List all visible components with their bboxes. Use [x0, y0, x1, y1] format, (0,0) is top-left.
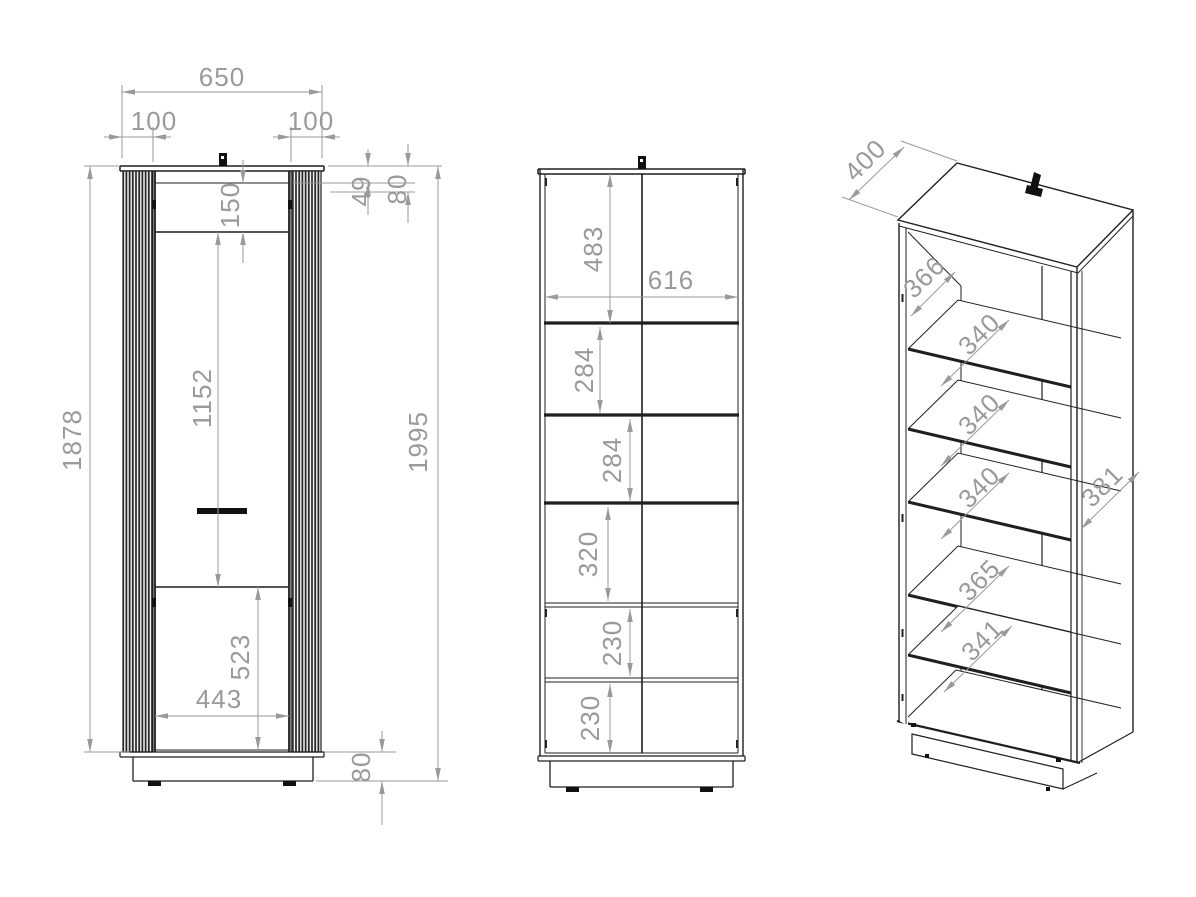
dim-compartment-5-group: 230: [597, 609, 630, 676]
bottom-panel: [120, 752, 324, 757]
foot: [1056, 758, 1061, 762]
dim-compartment-2-group: 284: [569, 327, 600, 413]
dim-top-depth: 400: [838, 133, 892, 187]
drawing-canvas: 650 100 100 49: [0, 0, 1196, 897]
dim-door-width: 443: [196, 684, 242, 714]
dim-compartment-3-group: 284: [597, 419, 630, 501]
top-panel: [120, 166, 324, 171]
perspective-shelves: [906, 300, 1121, 757]
dim-right-panel: 100: [288, 106, 334, 136]
fluted-panel-right: [291, 171, 321, 752]
bottom-panel: [538, 756, 745, 761]
top-panel: [538, 169, 745, 174]
section-view: 483 616 284 284 320 230: [538, 156, 745, 792]
dim-door-width-group: 443: [155, 684, 289, 716]
dim-left-panel: 100: [131, 106, 177, 136]
dim-door-opening: 1152: [187, 368, 217, 428]
dim-right-panel-group: 100: [273, 106, 340, 162]
foot: [925, 754, 929, 758]
foot: [566, 787, 579, 792]
dim-overall-height-group: 1995: [316, 166, 448, 781]
section-view-cabinet: [538, 156, 745, 792]
wall-connector: [219, 153, 227, 166]
foot: [1046, 787, 1050, 791]
foot: [700, 787, 713, 792]
dim-bottom-section-group: 523: [225, 587, 258, 750]
dim-compartment-4-group: 320: [573, 507, 608, 601]
dim-compartment-1-group: 483: [578, 174, 610, 323]
perspective-view: 400 366 340 340 340 365: [838, 133, 1139, 791]
plinth: [133, 757, 313, 781]
shelf: [908, 300, 1121, 387]
dim-bottom-section: 523: [225, 634, 255, 680]
dim-door-opening-group: 1152: [187, 232, 218, 587]
dim-overall-width: 650: [199, 62, 245, 92]
dim-door-gap: 150: [215, 182, 245, 228]
door-edges: [155, 171, 289, 752]
dim-compartment-4: 320: [573, 531, 603, 577]
dim-compartment-2: 284: [569, 347, 599, 393]
dim-top-section: 80: [382, 174, 412, 205]
foot: [148, 781, 161, 786]
foot: [911, 723, 916, 727]
dim-top-inset: 49: [346, 176, 376, 207]
dim-inner-width: 616: [648, 265, 694, 295]
dim-compartment-6: 230: [575, 695, 605, 741]
technical-drawing-page: 650 100 100 49: [0, 0, 1196, 897]
dim-compartment-6-group: 230: [575, 684, 610, 753]
dim-left-panel-group: 100: [104, 106, 177, 162]
top-panel: [898, 163, 1133, 267]
front-view-dimensions: 650 100 100 49: [57, 62, 448, 825]
dim-plinth-height-group: 80: [324, 731, 396, 825]
door-handle: [197, 508, 247, 514]
foot: [283, 781, 296, 786]
dim-top-section-group: 80: [382, 144, 412, 223]
fluted-panel-left: [123, 171, 153, 752]
dim-compartment-5: 230: [597, 620, 627, 666]
plinth: [550, 761, 733, 787]
dim-plinth-height: 80: [346, 752, 376, 783]
dim-overall-height: 1995: [403, 411, 433, 473]
dim-carcass-height: 1878: [57, 409, 87, 471]
dim-door-gap-group: 150: [215, 160, 245, 263]
front-view: 650 100 100 49: [57, 62, 448, 825]
shelf: [908, 380, 1121, 467]
shelf: [908, 606, 1121, 693]
wall-connector: [638, 156, 646, 169]
dim-carcass-height-group: 1878: [57, 166, 130, 752]
dim-compartment-3: 284: [597, 437, 627, 483]
dim-compartment-1: 483: [578, 226, 608, 272]
